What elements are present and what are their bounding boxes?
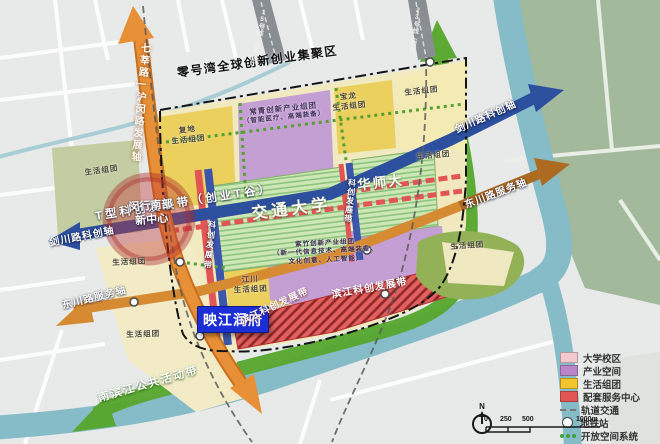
scale-bar-graphic <box>484 425 602 435</box>
scale-tick-0: 0 <box>484 416 488 423</box>
legend-row-rail: 轨道交通 <box>560 404 640 415</box>
legend-label-industry: 产业空间 <box>583 364 621 378</box>
service-swatch <box>560 391 578 402</box>
cluster-life-sw: 生活组团 <box>126 329 160 340</box>
living-swatch <box>560 378 578 389</box>
scale-tick-1000: 1000m <box>576 416 598 423</box>
scale-tick-500: 500 <box>522 416 534 423</box>
legend-row-service: 配套服务中心 <box>560 391 640 402</box>
cluster-jiangchuan: 江川 生活组团 <box>224 273 277 296</box>
industry-swatch <box>560 365 578 376</box>
legend-label-service: 配套服务中心 <box>583 390 640 404</box>
legend-row-industry: 产业空间 <box>560 365 640 376</box>
legend-label-living: 生活组团 <box>583 377 621 391</box>
rail-dash-icon <box>560 409 576 411</box>
university-swatch <box>560 352 578 363</box>
legend-row-university: 大学校区 <box>560 352 640 363</box>
legend-label-university: 大学校区 <box>583 351 621 365</box>
scale-tick-250: 250 <box>500 416 512 423</box>
legend-label-rail: 轨道交通 <box>581 403 619 417</box>
planning-map: 零号湾全球创新创业集聚区 T型科创发展带（创业T谷） 科创发展带 科创发展带 交… <box>0 0 660 444</box>
cluster-life-w: 生活组团 <box>112 256 146 268</box>
scale-bar: 0 250 500 1000m <box>484 416 606 436</box>
compass-north-letter: N <box>468 402 496 411</box>
legend-row-living: 生活组团 <box>560 378 640 389</box>
